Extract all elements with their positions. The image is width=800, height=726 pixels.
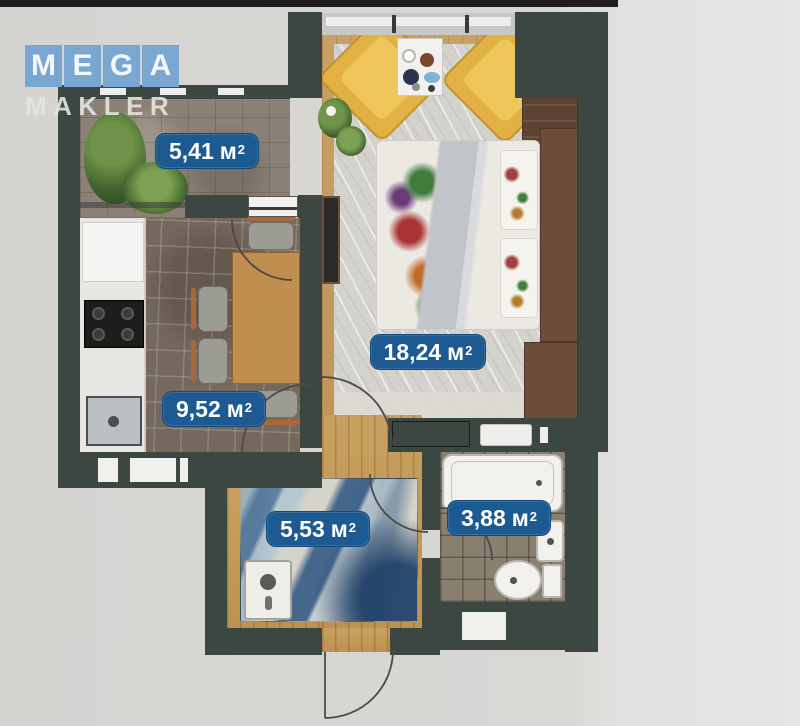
logo-letter: E <box>72 49 92 83</box>
area-value: 5,53 <box>280 518 325 541</box>
area-value: 3,88 <box>461 507 506 530</box>
area-value: 9,52 <box>176 398 221 421</box>
living-room-door-arc <box>322 377 392 445</box>
area-unit: м <box>512 507 529 530</box>
area-label-balcony: 5,41 м 2 <box>155 133 259 169</box>
area-label-kitchen: 9,52 м 2 <box>162 391 266 427</box>
logo-tile-row: M E G A <box>25 45 179 87</box>
area-sup: 2 <box>238 143 245 156</box>
area-sup: 2 <box>530 510 537 523</box>
area-unit: м <box>227 398 244 421</box>
area-value: 18,24 <box>384 341 442 364</box>
mega-makler-logo: M E G A MAKLER <box>25 45 179 122</box>
floor-plan-photo: M E G A MAKLER <box>0 0 800 726</box>
logo-letter-tile: G <box>103 45 140 87</box>
area-unit: м <box>331 518 348 541</box>
area-label-bathroom: 3,88 м 2 <box>447 500 551 536</box>
balcony-door-arc <box>232 220 292 280</box>
area-sup: 2 <box>349 521 356 534</box>
logo-letter: G <box>110 49 133 83</box>
logo-letter-tile: E <box>64 45 101 87</box>
logo-letter-tile: M <box>25 45 62 87</box>
area-label-hallway: 5,53 м 2 <box>266 511 370 547</box>
hallway-door-arc <box>370 474 428 532</box>
area-label-living-room: 18,24 м 2 <box>370 334 486 370</box>
area-unit: м <box>447 341 464 364</box>
area-sup: 2 <box>245 401 252 414</box>
area-value: 5,41 <box>169 140 214 163</box>
logo-subtitle: MAKLER <box>25 91 179 122</box>
logo-letter: A <box>150 49 172 83</box>
logo-letter: M <box>31 49 56 83</box>
entrance-door-arc <box>325 650 393 718</box>
area-unit: м <box>220 140 237 163</box>
area-sup: 2 <box>465 344 472 357</box>
logo-letter-tile: A <box>142 45 179 87</box>
